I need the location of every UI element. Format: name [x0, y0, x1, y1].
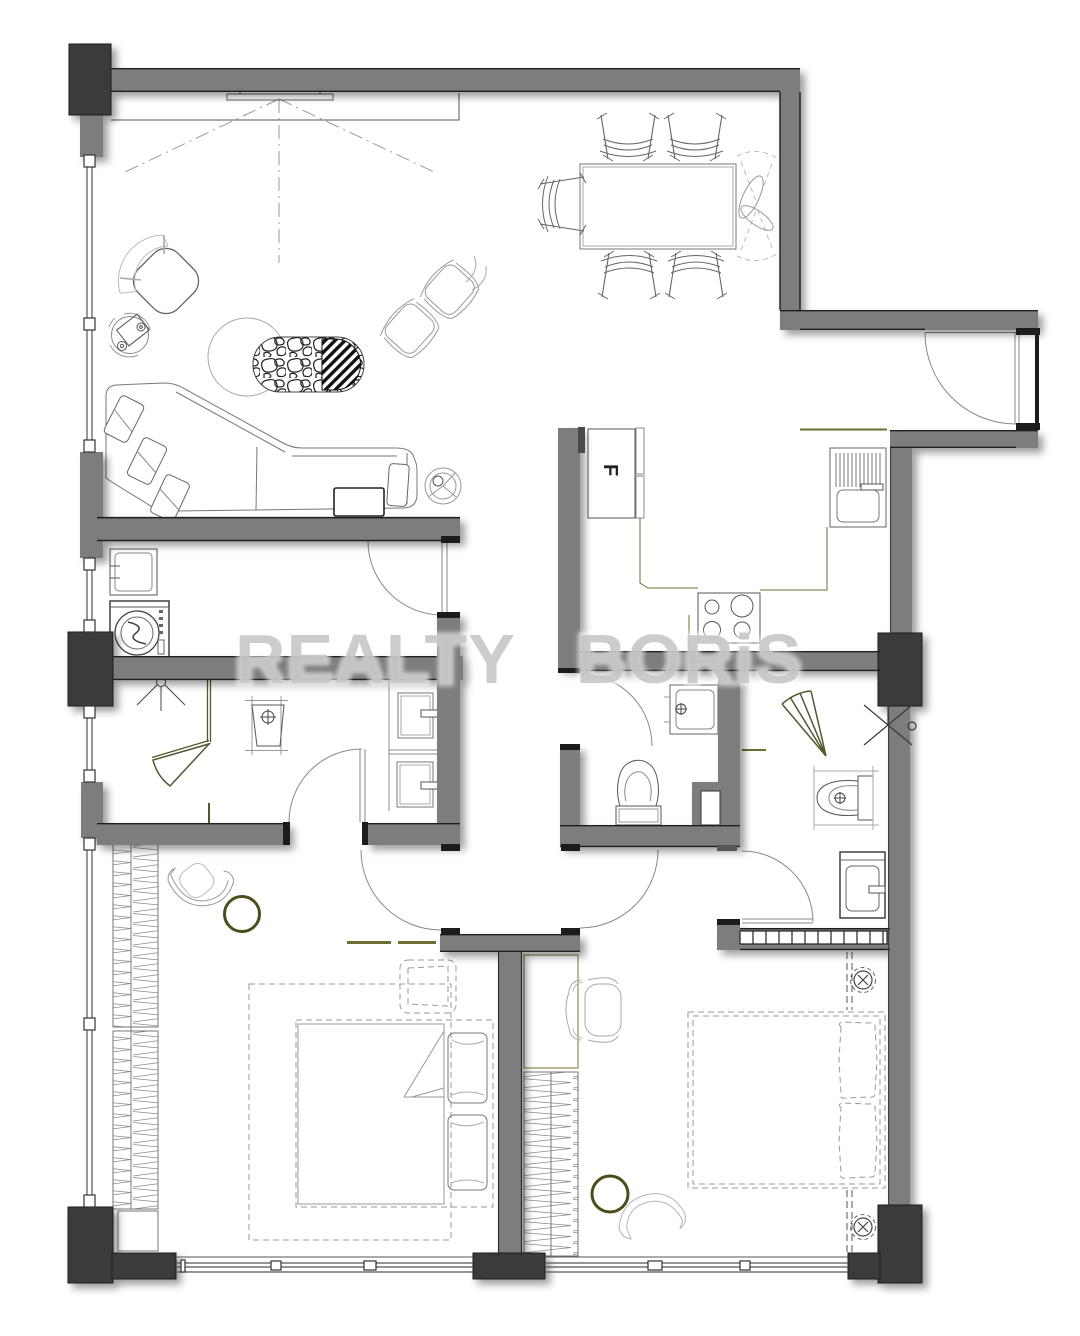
- svg-text:F: F: [599, 464, 621, 476]
- svg-text:REALTY BORiS: REALTY BORiS: [235, 620, 803, 698]
